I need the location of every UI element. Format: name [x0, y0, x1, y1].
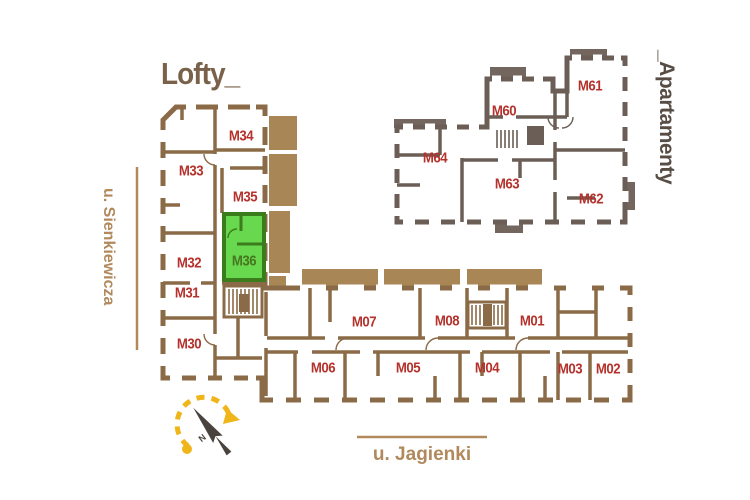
unit-label-m03[interactable]: M03 [558, 361, 582, 378]
unit-label-m35[interactable]: M35 [233, 189, 257, 206]
unit-label-m64[interactable]: M64 [423, 150, 447, 167]
compass-icon [177, 397, 240, 457]
street-label-jagienki: u. Jagienki [356, 444, 488, 466]
unit-label-m36[interactable]: M36 [232, 253, 256, 270]
unit-label-m02[interactable]: M02 [596, 361, 620, 378]
unit-label-m08[interactable]: M08 [435, 313, 459, 330]
unit-label-m33[interactable]: M33 [179, 163, 203, 180]
unit-label-m07[interactable]: M07 [352, 314, 376, 331]
unit-label-m32[interactable]: M32 [177, 255, 201, 272]
unit-label-m04[interactable]: M04 [475, 360, 499, 377]
apartamenty-title: _Apartamenty [654, 50, 678, 240]
unit-label-m60[interactable]: M60 [492, 103, 516, 120]
floorplan-page: Lofty_ _Apartamenty u. Sienkiewicza u. J… [0, 0, 750, 500]
unit-label-m34[interactable]: M34 [229, 128, 253, 145]
unit-label-m05[interactable]: M05 [396, 360, 420, 377]
lofty-staircase [224, 286, 262, 317]
unit-label-m61[interactable]: M61 [578, 78, 602, 95]
unit-label-m01[interactable]: M01 [520, 313, 544, 330]
unit-label-m63[interactable]: M63 [495, 176, 519, 193]
unit-label-m62[interactable]: M62 [579, 191, 603, 208]
lofty-title: Lofty_ [161, 56, 239, 92]
street-label-sienkiewicza: u. Sienkiewicza [99, 188, 117, 358]
unit-label-m30[interactable]: M30 [177, 336, 201, 353]
unit-label-m06[interactable]: M06 [311, 360, 335, 377]
unit-label-m31[interactable]: M31 [175, 285, 199, 302]
wing-staircase [468, 302, 506, 328]
highlighted-unit-m36[interactable] [224, 214, 264, 280]
